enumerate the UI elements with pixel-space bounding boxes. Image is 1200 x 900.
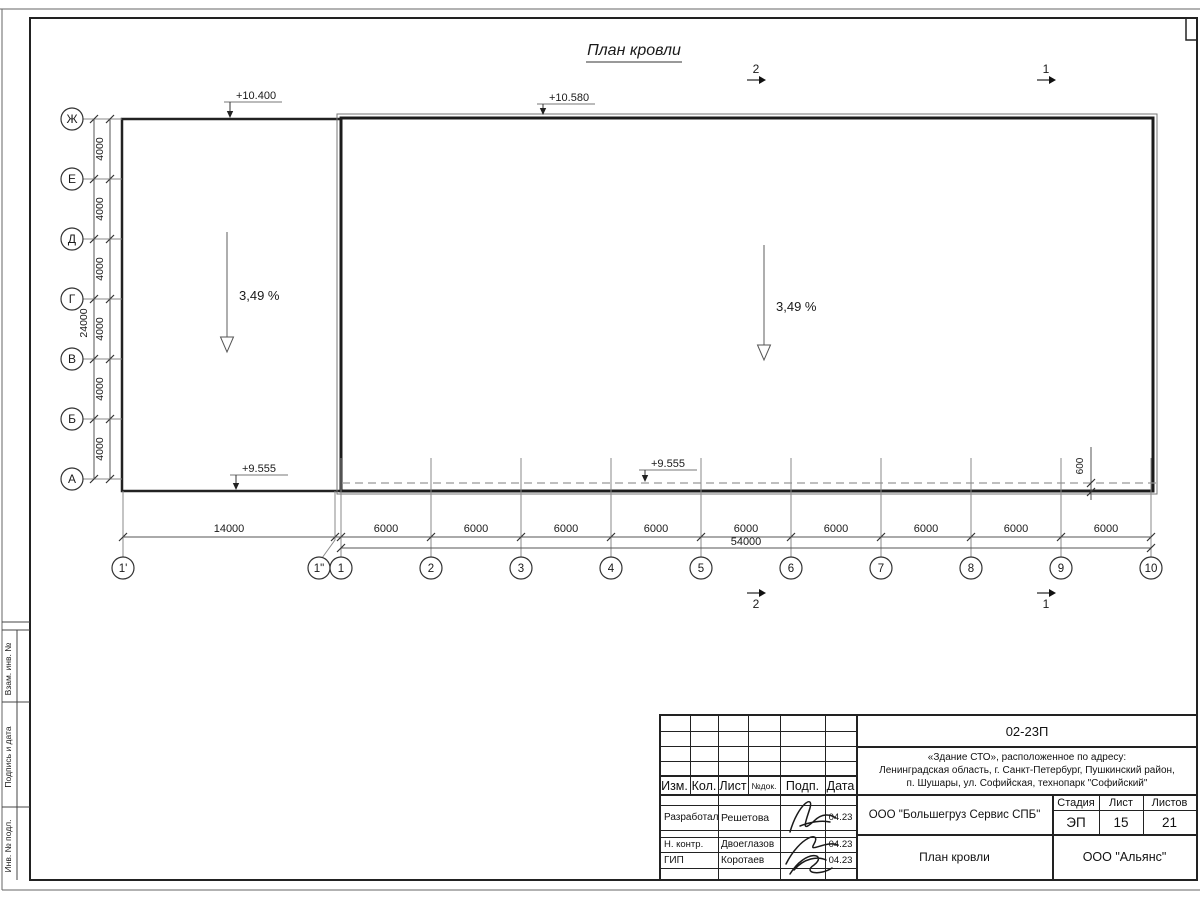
plan-drawing: Взам. инв. №Подпись и датаИнв. № подл.Пл… <box>0 0 1200 900</box>
section-mark-number: 2 <box>753 62 760 76</box>
row-axis-label: Г <box>69 292 76 306</box>
dim-label: 14000 <box>214 523 245 535</box>
row-axis-label: Е <box>68 172 76 186</box>
dim-label: 4000 <box>94 137 106 161</box>
col-axis-label: 5 <box>698 563 704 575</box>
frame-strip-label: Инв. № подл. <box>3 820 13 873</box>
dim-label: 4000 <box>94 377 106 401</box>
drawing-sheet: Взам. инв. №Подпись и датаИнв. № подл.Пл… <box>0 0 1200 900</box>
col-axis-label: 4 <box>608 563 615 575</box>
col-axis-label: 10 <box>1145 563 1158 575</box>
row-axis-label: В <box>68 352 76 366</box>
dim-label: 4000 <box>94 317 106 341</box>
dim-label: 4000 <box>94 257 106 281</box>
dim-label: 6000 <box>1004 523 1028 535</box>
section-arrowhead-icon <box>1049 76 1056 84</box>
col-axis-leader <box>322 540 335 558</box>
dim-label: 24000 <box>78 308 90 337</box>
dim-label: 6000 <box>374 523 398 535</box>
slope-label: 3,49 % <box>239 288 280 303</box>
dim-label: 6000 <box>1094 523 1118 535</box>
dim-label: 6000 <box>824 523 848 535</box>
section-mark-number: 2 <box>753 597 760 611</box>
dim-label: 4000 <box>94 197 106 221</box>
col-axis-label: 1' <box>119 563 128 575</box>
col-axis-label: 7 <box>878 563 884 575</box>
dim-label: 54000 <box>731 536 762 548</box>
down-arrow-icon <box>227 111 233 118</box>
col-axis-label: 3 <box>518 563 524 575</box>
col-axis-label: 9 <box>1058 563 1064 575</box>
dim-label: 6000 <box>734 523 758 535</box>
col-axis-label: 1 <box>338 563 344 575</box>
elevation-mark: +9.555 <box>242 463 276 475</box>
dim-label: 6000 <box>644 523 668 535</box>
section-mark-number: 1 <box>1043 62 1050 76</box>
elevation-mark: +10.580 <box>549 92 589 104</box>
row-axis-label: Б <box>68 412 76 426</box>
drawing-title: План кровли <box>587 42 681 59</box>
roof-left-outline <box>122 119 341 491</box>
dim-label: 6000 <box>914 523 938 535</box>
col-axis-label: 1" <box>314 563 324 575</box>
row-axis-label: Д <box>68 232 76 246</box>
frame-corner-box <box>1186 18 1197 40</box>
col-axis-label: 2 <box>428 563 434 575</box>
section-arrowhead-icon <box>1049 589 1056 597</box>
frame-strip-label: Взам. инв. № <box>3 643 13 696</box>
dim-label: 6000 <box>554 523 578 535</box>
section-mark-number: 1 <box>1043 597 1050 611</box>
row-axis-label: А <box>68 472 76 486</box>
col-axis-label: 6 <box>788 563 794 575</box>
section-arrowhead-icon <box>759 589 766 597</box>
dim-label: 4000 <box>94 437 106 461</box>
dim-label: 6000 <box>464 523 488 535</box>
elevation-mark: +9.555 <box>651 458 685 470</box>
row-axis-label: Ж <box>66 112 77 126</box>
frame-strip-label: Подпись и дата <box>3 726 13 787</box>
slope-label: 3,49 % <box>776 299 817 314</box>
col-axis-label: 8 <box>968 563 974 575</box>
elevation-mark: +10.400 <box>236 90 276 102</box>
roof-right-outline <box>341 118 1153 491</box>
dim-label: 600 <box>1075 457 1086 474</box>
section-arrowhead-icon <box>759 76 766 84</box>
